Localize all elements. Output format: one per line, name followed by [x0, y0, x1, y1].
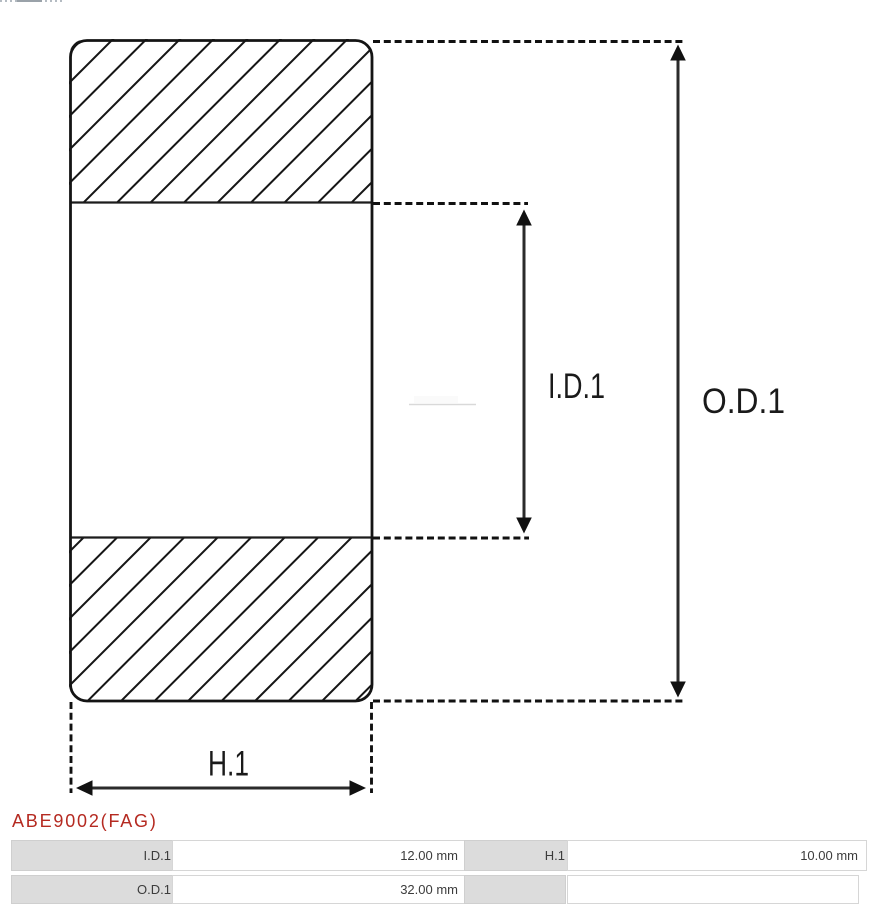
svg-text:O.D.1: O.D.1: [702, 382, 785, 421]
svg-text:H.1: H.1: [208, 745, 249, 784]
svg-text:I.D.1: I.D.1: [548, 367, 605, 406]
